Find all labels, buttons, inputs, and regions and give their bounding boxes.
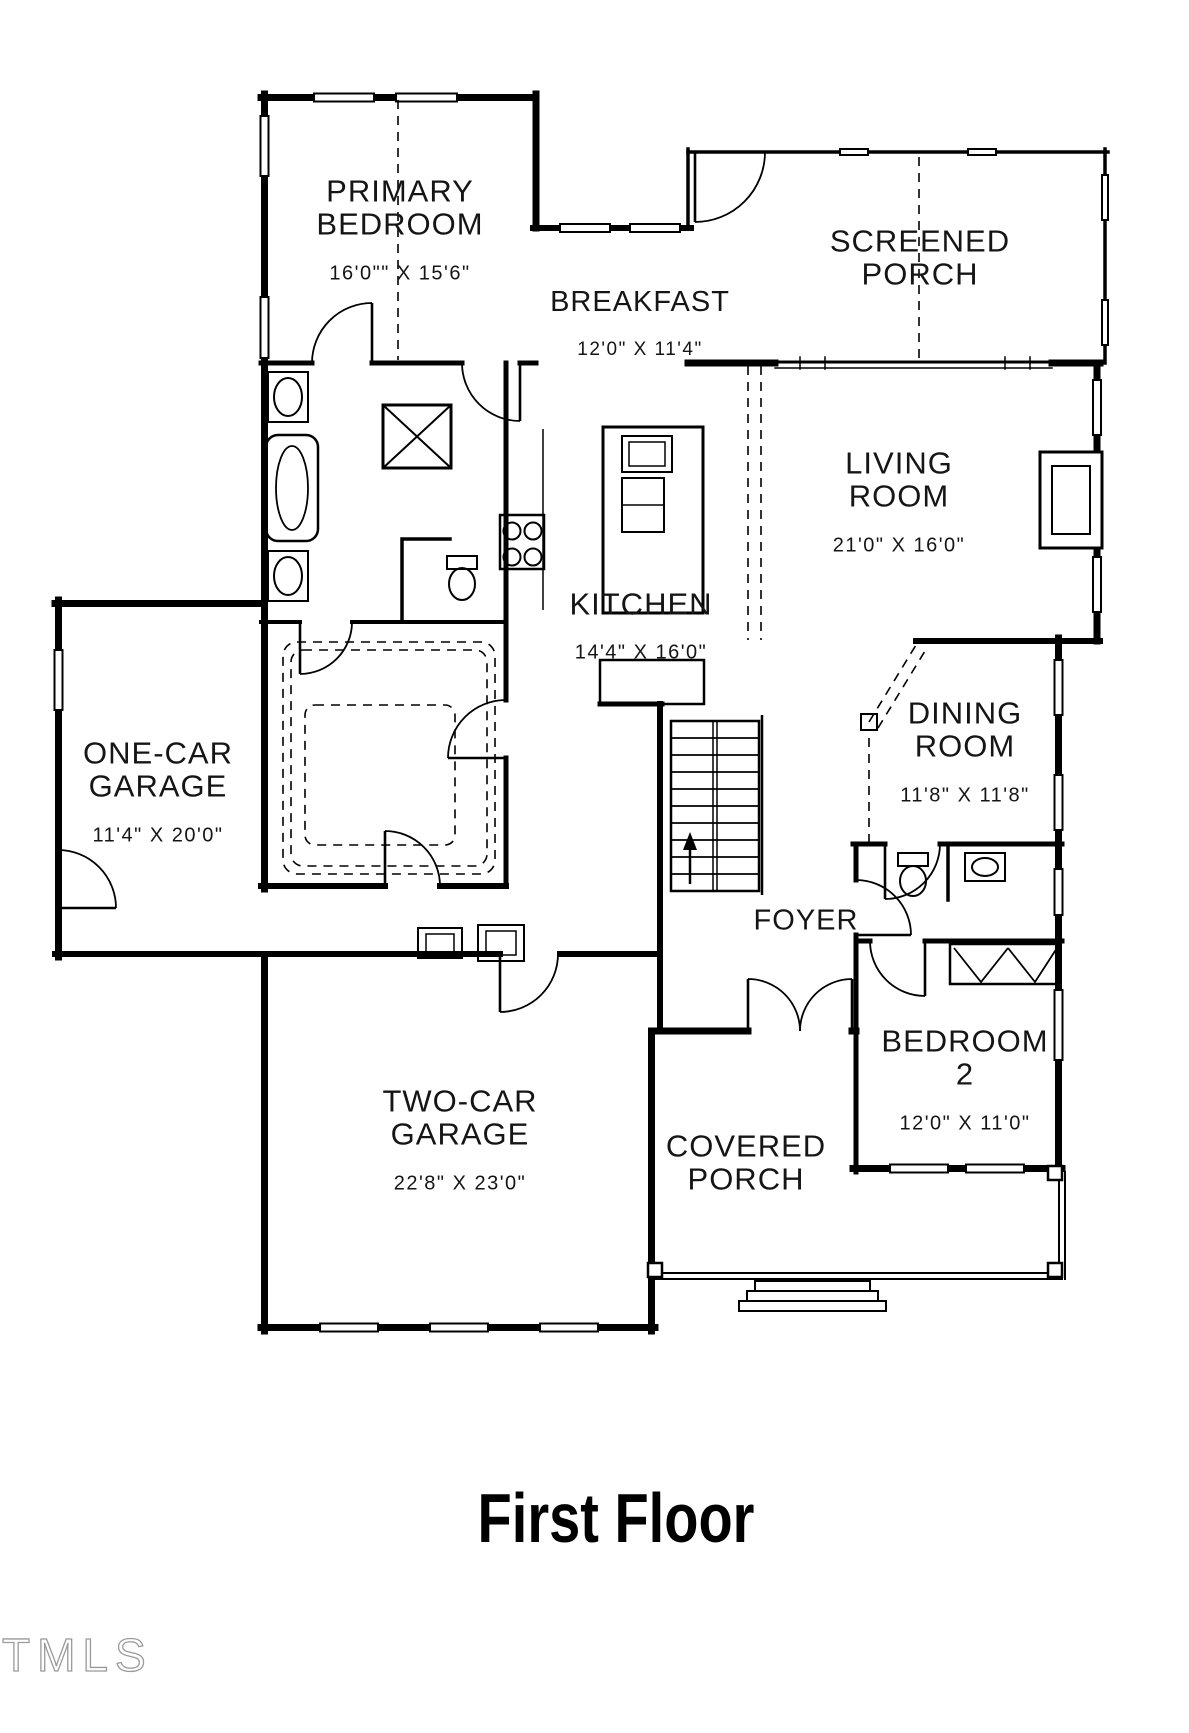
room-name: SCREENED PORCH	[830, 225, 1010, 292]
room-label-primary-bedroom: PRIMARY BEDROOM 16'0"" X 15'6"	[316, 157, 483, 304]
porch-column	[1048, 1263, 1062, 1277]
room-label-foyer: FOYER	[754, 887, 859, 954]
room-name: BREAKFAST	[550, 287, 730, 318]
room-name: PRIMARY BEDROOM	[316, 175, 483, 242]
room-dims: 21'0" X 16'0"	[833, 534, 966, 557]
room-label-covered-porch: COVERED PORCH	[666, 1112, 826, 1215]
room-label-bedroom-2: BEDROOM 2 12'0" X 11'0"	[881, 1007, 1048, 1154]
room-name: TWO-CAR GARAGE	[382, 1085, 537, 1152]
room-label-dining-room: DINING ROOM 11'8" X 11'8"	[900, 679, 1030, 826]
room-dims: 11'8" X 11'8"	[900, 784, 1030, 807]
room-name: DINING ROOM	[900, 697, 1030, 764]
stairs-up-arrow	[683, 832, 697, 850]
room-label-living-room: LIVING ROOM 21'0" X 16'0"	[833, 429, 966, 576]
room-dims: 14'4" X 16'0"	[569, 642, 712, 665]
room-label-screened-porch: SCREENED PORCH	[830, 207, 1010, 310]
tmls-watermark: TMLS	[2, 1628, 153, 1682]
room-dims: 11'4" X 20'0"	[83, 824, 233, 847]
porch-steps	[739, 1281, 886, 1311]
room-dims: 16'0"" X 15'6"	[316, 262, 483, 285]
room-label-two-car-garage: TWO-CAR GARAGE 22'8" X 23'0"	[382, 1067, 537, 1214]
room-label-one-car-garage: ONE-CAR GARAGE 11'4" X 20'0"	[83, 719, 233, 866]
porch-column	[648, 1263, 662, 1277]
floor-plan-drawing	[0, 0, 1189, 1733]
room-name: COVERED PORCH	[666, 1130, 826, 1197]
room-name: BEDROOM 2	[881, 1025, 1048, 1092]
room-label-breakfast: BREAKFAST 12'0" X 11'4"	[550, 269, 730, 379]
room-label-kitchen: KITCHEN 14'4" X 16'0"	[569, 569, 712, 682]
room-name: KITCHEN	[569, 587, 712, 620]
room-dims: 12'0" X 11'0"	[881, 1112, 1048, 1135]
room-name: FOYER	[754, 905, 859, 936]
room-dims: 22'8" X 23'0"	[382, 1172, 537, 1195]
page-title: First Floor	[478, 1478, 755, 1558]
porch-column	[1048, 1166, 1062, 1180]
room-name: ONE-CAR GARAGE	[83, 737, 233, 804]
room-name: LIVING ROOM	[833, 447, 966, 514]
floor-plan-page: PRIMARY BEDROOM 16'0"" X 15'6" SCREENED …	[0, 0, 1189, 1733]
staircase	[671, 715, 762, 895]
room-dims: 12'0" X 11'4"	[550, 339, 730, 361]
